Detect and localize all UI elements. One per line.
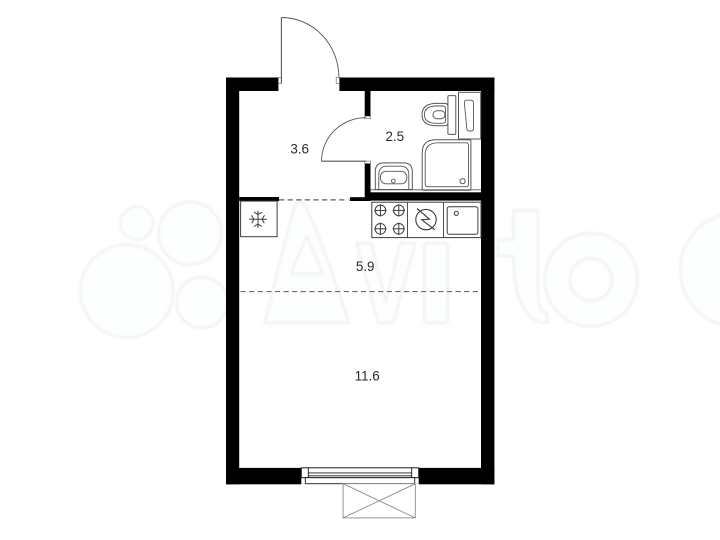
svg-text:2.5: 2.5 [385,129,404,144]
svg-text:3.6: 3.6 [290,142,309,157]
svg-text:11.6: 11.6 [355,368,380,383]
svg-text:5.9: 5.9 [356,259,375,274]
